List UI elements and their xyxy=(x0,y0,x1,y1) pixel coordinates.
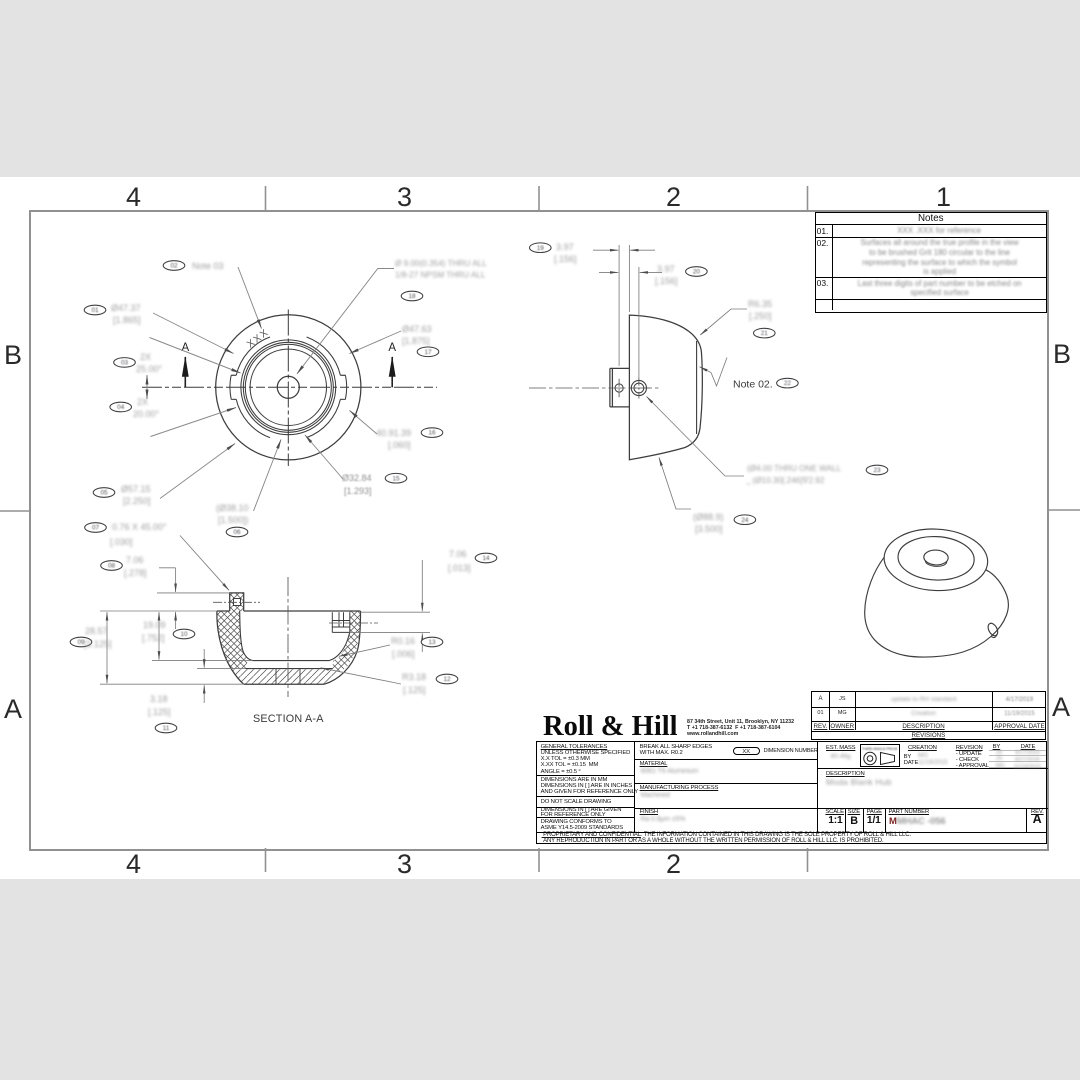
svg-text:03: 03 xyxy=(121,360,129,367)
svg-text:2X: 2X xyxy=(140,352,151,362)
svg-text:15: 15 xyxy=(392,475,400,482)
svg-text:12: 12 xyxy=(443,676,451,683)
svg-text:R3.18: R3.18 xyxy=(402,672,426,682)
svg-text:[.006]: [.006] xyxy=(392,649,415,659)
svg-text:[.125]: [.125] xyxy=(148,707,171,717)
svg-text:(Ø4.00 THRU ONE WALL: (Ø4.00 THRU ONE WALL xyxy=(747,464,842,473)
svg-text:08: 08 xyxy=(108,563,116,570)
svg-text:Ø47.63: Ø47.63 xyxy=(402,324,432,334)
svg-text:Ø 9.00(0.354) THRU ALL: Ø 9.00(0.354) THRU ALL xyxy=(395,259,487,268)
svg-text:23: 23 xyxy=(873,467,881,474)
svg-text:25.00°: 25.00° xyxy=(136,364,163,374)
svg-text:40.91.39: 40.91.39 xyxy=(376,428,411,438)
svg-text:3.97: 3.97 xyxy=(556,242,574,252)
svg-text:⎵ (Ø10.30[.246]∇2.92: ⎵ (Ø10.30[.246]∇2.92 xyxy=(747,476,825,485)
svg-text:2X: 2X xyxy=(137,397,148,407)
svg-text:20.00°: 20.00° xyxy=(133,409,160,419)
svg-text:[.156]: [.156] xyxy=(655,276,678,286)
svg-text:06: 06 xyxy=(233,529,241,536)
svg-text:10: 10 xyxy=(180,631,188,638)
svg-text:[1.125]: [1.125] xyxy=(84,639,112,649)
svg-text:04: 04 xyxy=(117,404,125,411)
svg-text:Note 03: Note 03 xyxy=(192,261,224,271)
svg-text:[1.500]): [1.500]) xyxy=(218,515,249,525)
svg-text:21: 21 xyxy=(761,330,769,337)
svg-text:[.250]: [.250] xyxy=(749,311,772,321)
svg-text:18: 18 xyxy=(408,293,416,300)
svg-text:11: 11 xyxy=(163,725,170,732)
svg-text:R6.35: R6.35 xyxy=(748,299,772,309)
svg-text:02: 02 xyxy=(170,263,178,270)
svg-text:16: 16 xyxy=(428,430,436,437)
svg-text:[2.250]: [2.250] xyxy=(123,496,151,506)
svg-text:[.125]: [.125] xyxy=(403,685,426,695)
svg-text:24: 24 xyxy=(741,517,749,524)
svg-text:(Ø38.10: (Ø38.10 xyxy=(216,503,249,513)
svg-text:[1.875]: [1.875] xyxy=(402,336,430,346)
svg-text:3.18: 3.18 xyxy=(150,694,168,704)
svg-text:7.06: 7.06 xyxy=(449,549,467,559)
svg-text:13: 13 xyxy=(428,639,436,646)
svg-text:[.278]: [.278] xyxy=(124,568,147,578)
svg-text:(Ø88.9): (Ø88.9) xyxy=(693,512,724,522)
svg-text:Ø47.37: Ø47.37 xyxy=(111,303,141,313)
svg-text:[.030]: [.030] xyxy=(110,537,133,547)
svg-text:SECTION A-A: SECTION A-A xyxy=(253,713,324,725)
svg-text:28.57: 28.57 xyxy=(85,626,108,636)
svg-text:[3.500]: [3.500] xyxy=(695,524,723,534)
svg-text:05: 05 xyxy=(100,490,108,497)
svg-text:A: A xyxy=(388,342,396,354)
svg-text:22: 22 xyxy=(784,380,792,387)
svg-text:3.97: 3.97 xyxy=(657,264,675,274)
svg-text:14: 14 xyxy=(482,555,490,562)
svg-text:07: 07 xyxy=(92,525,100,532)
svg-text:0.76 X 45.00°: 0.76 X 45.00° xyxy=(112,522,167,532)
svg-text:19: 19 xyxy=(537,245,545,252)
svg-text:01: 01 xyxy=(91,307,99,314)
svg-text:[.156]: [.156] xyxy=(554,254,577,264)
svg-text:20: 20 xyxy=(693,269,701,276)
svg-text:Note 02.: Note 02. xyxy=(733,379,773,391)
svg-text:17: 17 xyxy=(424,349,432,356)
svg-text:7.06: 7.06 xyxy=(126,555,144,565)
svg-text:Ø32.84: Ø32.84 xyxy=(342,473,372,483)
svg-text:[1.293]: [1.293] xyxy=(344,486,372,496)
svg-text:R0.16: R0.16 xyxy=(391,636,415,646)
svg-text:[.060]: [.060] xyxy=(388,440,411,450)
svg-text:[.013]: [.013] xyxy=(448,563,471,573)
svg-text:[1.865]: [1.865] xyxy=(113,315,141,325)
svg-text:1/8-27 NPSM THRU ALL: 1/8-27 NPSM THRU ALL xyxy=(395,271,486,280)
svg-text:19.09: 19.09 xyxy=(143,620,166,630)
svg-text:[.752]: [.752] xyxy=(142,633,165,643)
svg-text:Ø57.15: Ø57.15 xyxy=(121,484,151,494)
